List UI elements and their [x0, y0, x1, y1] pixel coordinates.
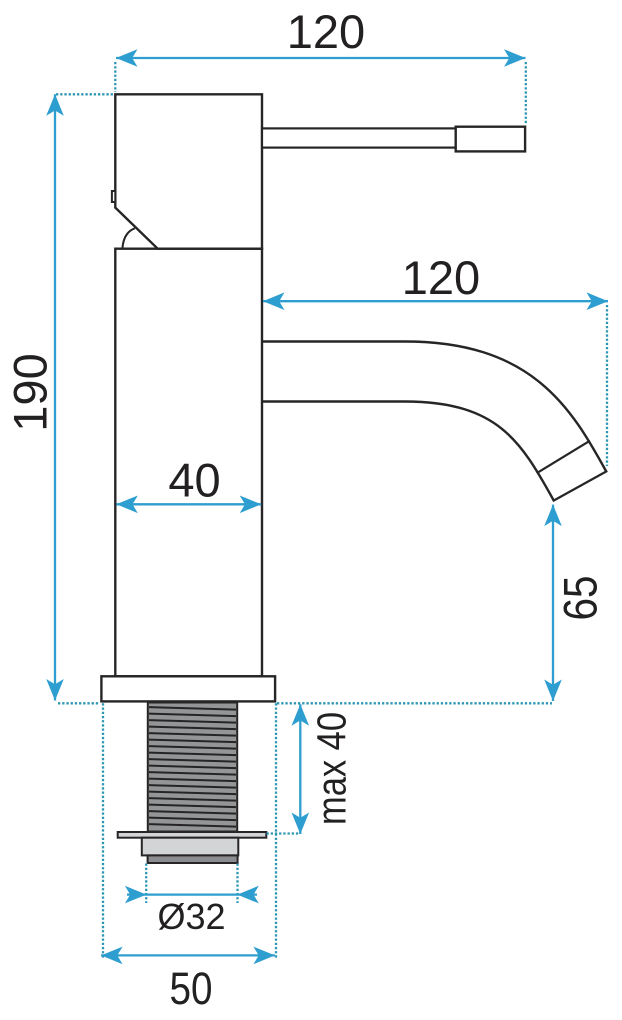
- svg-text:190: 190: [4, 353, 57, 431]
- svg-text:40: 40: [168, 454, 220, 507]
- svg-text:max 40: max 40: [309, 712, 355, 825]
- svg-text:120: 120: [402, 251, 480, 304]
- svg-text:50: 50: [170, 963, 213, 1014]
- svg-text:65: 65: [554, 576, 607, 621]
- svg-text:120: 120: [287, 5, 365, 58]
- svg-text:Ø32: Ø32: [157, 896, 225, 937]
